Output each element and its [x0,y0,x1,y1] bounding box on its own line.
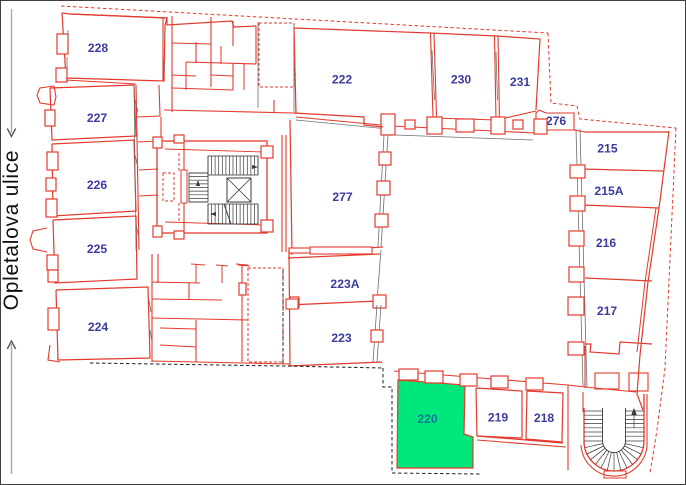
svg-text:220: 220 [417,412,438,426]
svg-text:Opletalova ulice: Opletalova ulice [0,150,23,311]
svg-text:215: 215 [597,142,618,156]
svg-text:217: 217 [597,304,618,318]
svg-text:226: 226 [87,178,108,192]
svg-text:222: 222 [332,73,353,87]
svg-text:218: 218 [534,411,555,425]
svg-text:216: 216 [596,236,617,250]
svg-text:228: 228 [88,41,109,55]
svg-text:223: 223 [331,331,352,345]
svg-text:230: 230 [451,73,472,87]
svg-text:219: 219 [488,411,509,425]
svg-text:276: 276 [546,114,567,128]
svg-text:231: 231 [510,75,531,89]
svg-text:223A: 223A [330,277,359,291]
svg-text:215A: 215A [594,184,623,198]
svg-text:277: 277 [332,190,353,204]
svg-text:224: 224 [88,320,109,334]
svg-text:225: 225 [87,242,108,256]
svg-text:227: 227 [87,111,108,125]
